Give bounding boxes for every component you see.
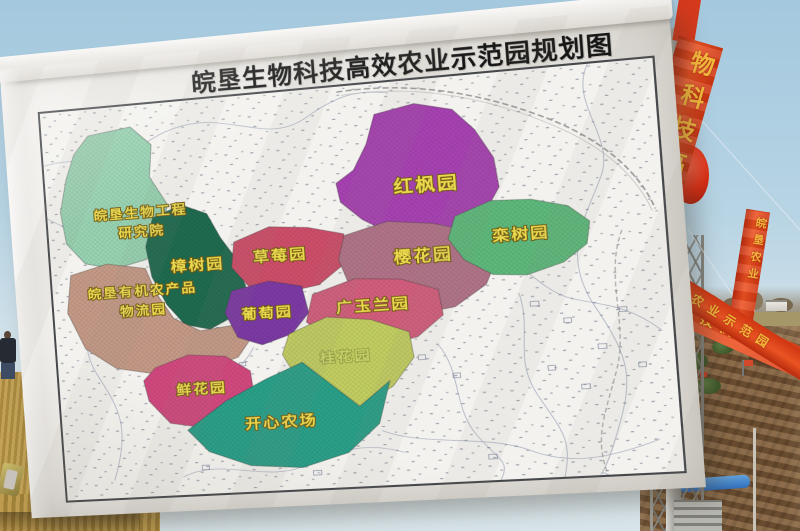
person-legs [1, 363, 15, 379]
map-label-osmanthus-garden: 桂花园 [318, 347, 372, 367]
photo-scene: 物科技高效农业 皖垦农业 生物科技高效农业 高效农业示范园 皖垦生物科技高效农业… [0, 0, 800, 531]
truss-base [674, 500, 722, 531]
red-flag [744, 360, 753, 366]
red-banner-corner [732, 0, 800, 51]
bystander-person [0, 331, 16, 379]
map-svg: 皖垦生物工程研究院樟树园皖垦有机农产品物流园红枫园草莓园葡萄园樱花园栾树园广玉兰… [40, 58, 685, 501]
red-banner-tip [672, 0, 701, 43]
stake [753, 428, 756, 531]
map-panel: 皖垦生物工程研究院樟树园皖垦有机农产品物流园红枫园草莓园葡萄园樱花园栾树园广玉兰… [38, 56, 687, 503]
billboard-canvas: 皖垦生物科技高效农业示范园规划图 [0, 5, 706, 518]
person-torso [0, 338, 16, 363]
map-label-flower-garden: 鲜花园 [176, 379, 228, 398]
buckle-hole [3, 469, 18, 490]
distant-building [766, 300, 787, 311]
